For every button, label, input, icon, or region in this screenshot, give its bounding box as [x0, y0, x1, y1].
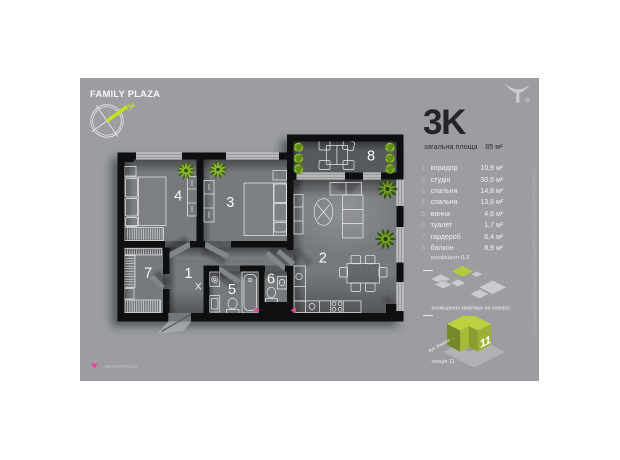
svg-text:- вентиляція: - вентиляція — [101, 364, 138, 370]
svg-text:3: 3 — [226, 195, 234, 211]
svg-text:2: 2 — [319, 251, 327, 267]
svg-text:4: 4 — [174, 189, 182, 205]
svg-text:розміщення квартири на поверсі: розміщення квартири на поверсі — [432, 306, 510, 312]
svg-text:6: 6 — [267, 272, 275, 288]
svg-text:При розробці дизайну всіх квар: При розробці дизайну всіх квартир викори… — [532, 167, 537, 336]
svg-text:8: 8 — [367, 149, 375, 165]
svg-text:Пн: Пн — [124, 100, 137, 113]
svg-text:1: 1 — [184, 266, 192, 282]
svg-text:5: 5 — [228, 282, 236, 298]
svg-text:секція 11: секція 11 — [432, 359, 455, 365]
svg-text:7: 7 — [144, 265, 152, 281]
